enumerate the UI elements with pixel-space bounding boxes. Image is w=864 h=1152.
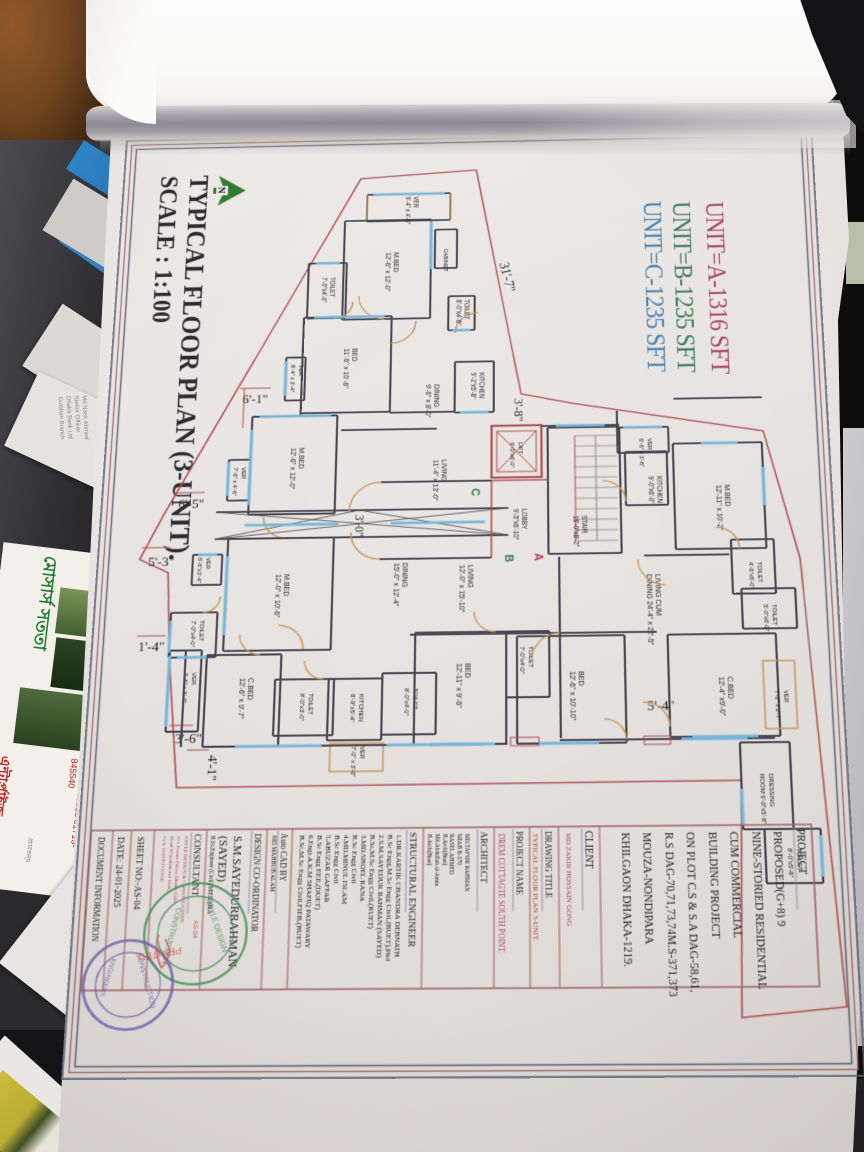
svg-text:BUILDING PROJECT: BUILDING PROJECT <box>704 832 720 939</box>
svg-text:4.MD.MINUL ISLAM: 4.MD.MINUL ISLAM <box>340 835 350 905</box>
svg-text:9'-4" x 4'-6": 9'-4" x 4'-6" <box>403 197 410 225</box>
svg-text:3'-6": 3'-6" <box>174 731 202 746</box>
svg-text:1.DR.KARTIK CHANDRA DEBNATH: 1.DR.KARTIK CHANDRA DEBNATH <box>392 834 403 958</box>
svg-text:9'-6" x 8'-0": 9'-6" x 8'-0" <box>423 384 431 418</box>
svg-text:AS-04: AS-04 <box>190 920 198 938</box>
svg-text:C.BED: C.BED <box>725 676 734 699</box>
svg-text:DINING: DINING <box>399 563 408 588</box>
svg-text:KITCHEN: KITCHEN <box>356 694 364 722</box>
svg-text:6'-1": 6'-1" <box>242 393 268 407</box>
svg-text:5'-4": 5'-4" <box>647 698 675 713</box>
svg-text:ENGINEERS: ENGINEERS <box>97 958 116 998</box>
svg-text:ROOM 9'-0"x5'-8": ROOM 9'-0"x5'-8" <box>757 774 766 824</box>
svg-text:7'-6" x 4'-6": 7'-6" x 4'-6" <box>230 467 238 496</box>
svg-text:9'-5"x6'-10": 9'-5"x6'-10" <box>511 509 518 540</box>
svg-text:TOILET: TOILET <box>196 620 204 642</box>
svg-text:LOBBY: LOBBY <box>519 509 526 530</box>
svg-text:5'-0"x6'-0": 5'-0"x6'-0" <box>761 604 769 631</box>
svg-text:NINE-STORIED RESIDENTIAL: NINE-STORIED RESIDENTIAL <box>748 831 767 989</box>
svg-text:(SAYED): (SAYED) <box>214 836 229 882</box>
svg-text:M.BED: M.BED <box>722 485 731 507</box>
svg-text:DRAWING TITLE: DRAWING TITLE <box>543 831 553 899</box>
svg-text:12'-4" x9'-0": 12'-4" x9'-0" <box>716 677 726 717</box>
svg-text:Md.Abdullah al-Amin: Md.Abdullah al-Amin <box>432 834 439 887</box>
svg-text:6'-0"x6'-0": 6'-0"x6'-0" <box>507 442 514 467</box>
svg-text:12'-6" x 10'-10": 12'-6" x 10'-10" <box>567 671 576 721</box>
svg-text:CUM COMMERCIAL: CUM COMMERCIAL <box>726 832 742 939</box>
svg-text:UNIT=B-1235 SFT: UNIT=B-1235 SFT <box>666 201 701 372</box>
svg-text:STRUCTURAL ENGINEER: STRUCTURAL ENGINEER <box>406 832 419 948</box>
svg-text:6'-6" x 3'-6": 6'-6" x 3'-6" <box>636 438 644 467</box>
svg-text:LIVING: LIVING <box>465 565 473 588</box>
svg-text:M.BED: M.BED <box>296 448 305 470</box>
svg-text:VER: VER <box>645 438 652 450</box>
svg-text:B.Arch(Buet): B.Arch(Buet) <box>425 834 432 866</box>
svg-text:6'-5": 6'-5" <box>178 497 205 511</box>
svg-text:MD.TAFSIR RAHMAN: MD.TAFSIR RAHMAN <box>463 834 469 892</box>
svg-text:C: C <box>468 488 481 496</box>
svg-text:B.Arch(Buet): B.Arch(Buet) <box>440 834 446 866</box>
svg-text:7'-0"x4'-0": 7'-0"x4'-0" <box>319 277 326 302</box>
svg-text:LIVING CUM: LIVING CUM <box>652 574 661 616</box>
svg-text:4'-6"x6'-0": 4'-6"x6'-0" <box>746 562 754 589</box>
svg-text:LIVING: LIVING <box>439 459 447 481</box>
svg-text:B.Sc Engg Civil: B.Sc Engg Civil <box>349 835 359 884</box>
svg-text:MIAB R-370: MIAB R-370 <box>455 834 461 866</box>
svg-text:CABINET: CABINET <box>441 249 448 273</box>
svg-text:TOILET: TOILET <box>769 604 777 626</box>
svg-text:PROJECT: PROJECT <box>794 829 809 875</box>
svg-text:7'-0" x 3'-0": 7'-0" x 3'-0" <box>348 746 356 777</box>
svg-text:LIFT: LIFT <box>516 442 523 454</box>
svg-text:M.BED: M.BED <box>281 574 290 597</box>
svg-text:DOCUMENT INFORMATION: DOCUMENT INFORMATION <box>89 837 104 942</box>
svg-text:B: B <box>502 554 515 562</box>
svg-text:VER: VER <box>203 558 211 570</box>
svg-text:KHILGAON DHAKA-1219.: KHILGAON DHAKA-1219. <box>618 832 633 967</box>
svg-text:7'-0"x4'-0": 7'-0"x4'-0" <box>517 646 524 673</box>
svg-text:3.MD.SHOEL RANA: 3.MD.SHOEL RANA <box>358 835 368 903</box>
svg-text:MOUZA-NONDIPARA: MOUZA-NONDIPARA <box>639 832 654 944</box>
svg-text:KITCHEN: KITCHEN <box>654 476 662 503</box>
svg-text:KITCHEN: KITCHEN <box>477 372 484 398</box>
svg-text:12'-0" x 15'-10": 12'-0" x 15'-10" <box>456 565 465 613</box>
svg-text:12'-11" x 10'-2": 12'-11" x 10'-2" <box>713 485 723 532</box>
svg-text:7'-0"x4'-0": 7'-0"x4'-0" <box>187 620 195 647</box>
svg-text:ON PLOT C.S & S.A DAG-58,61,: ON PLOT C.S & S.A DAG-58,61, <box>683 832 700 993</box>
svg-text:7'-2" x 2'-7": 7'-2" x 2'-7" <box>772 690 781 720</box>
svg-text:5'-3": 5'-3" <box>148 555 175 569</box>
svg-text:8'-0"x4'-0": 8'-0"x4'-0" <box>401 688 409 716</box>
svg-text:VER: VER <box>357 746 364 759</box>
svg-text:9'-2"x5'-8": 9'-2"x5'-8" <box>468 373 475 399</box>
svg-text:VER: VER <box>189 672 197 685</box>
svg-text:PROPOSED(G+8) 9: PROPOSED(G+8) 9 <box>770 831 788 927</box>
svg-text:VER: VER <box>411 196 418 207</box>
svg-text:8'-0"x4'-6": 8'-0"x4'-6" <box>454 300 461 326</box>
svg-text:12'-6" x 9'-7": 12'-6" x 9'-7" <box>235 678 245 720</box>
svg-text:TOILET: TOILET <box>305 693 313 715</box>
svg-text:UNIT=A-1316 SFT: UNIT=A-1316 SFT <box>699 201 735 374</box>
svg-text:12'-11" x 9'-6": 12'-11" x 9'-6" <box>453 663 462 708</box>
svg-text:11'-6" x 10'-6": 11'-6" x 10'-6" <box>341 348 350 389</box>
svg-text:8'-4" x 3'-4": 8'-4" x 3'-4" <box>287 365 295 393</box>
svg-text:DESIGN CO-ORDINATOR: DESIGN CO-ORDINATOR <box>249 833 263 932</box>
svg-text:TOILET: TOILET <box>755 562 763 583</box>
svg-text:SHEET NO:-AS-04: SHEET NO:-AS-04 <box>131 836 146 909</box>
svg-text:M.BED: M.BED <box>391 252 399 272</box>
svg-text:TOILET: TOILET <box>327 277 334 297</box>
svg-text:PROJECT NAME: PROJECT NAME <box>514 831 524 896</box>
svg-text:DRESSING: DRESSING <box>766 774 775 807</box>
svg-text:STAIR: STAIR <box>579 516 586 534</box>
svg-text:8'-0"x5'-8": 8'-0"x5'-8" <box>785 848 794 877</box>
svg-text:3'-8": 3'-8" <box>511 398 526 422</box>
svg-text:1'-4": 1'-4" <box>138 640 165 655</box>
svg-text:CLIENT: CLIENT <box>583 831 596 870</box>
svg-text:4'-1": 4'-1" <box>204 755 221 781</box>
svg-text:RASEL AHMED: RASEL AHMED <box>448 834 454 875</box>
svg-text:VER: VER <box>781 690 789 703</box>
svg-text:8'-0"x3'-0": 8'-0"x3'-0" <box>297 693 305 721</box>
svg-text:R.S DAG-70,71,73,74M.S-371,373: R.S DAG-70,71,73,74M.S-371,373 <box>661 832 678 997</box>
svg-text:DINING: DINING <box>431 384 439 407</box>
svg-text:12'-6" x 12'-0": 12'-6" x 12'-0" <box>382 252 391 292</box>
svg-text:STYLE DESIGN: STYLE DESIGN <box>203 898 228 954</box>
svg-text:C.BED: C.BED <box>245 678 254 701</box>
svg-text:BED: BED <box>349 348 357 362</box>
svg-text:3'-0": 3'-0" <box>351 515 365 537</box>
svg-text:12'-6" x 12'-0": 12'-6" x 12'-0" <box>287 448 297 491</box>
svg-text:N: N <box>215 187 227 195</box>
svg-text:9'-0"x6'-0": 9'-0"x6'-0" <box>646 476 654 503</box>
svg-text:5.ABUZAR GAFFAR: 5.ABUZAR GAFFAR <box>322 835 332 904</box>
svg-text:TYPICAL FLOOR PLAN 3-UNIT.: TYPICAL FLOOR PLAN 3-UNIT. <box>530 833 539 942</box>
svg-text:BED: BED <box>576 671 585 686</box>
svg-text:MD.ZAKIR HOSSAIN GONG: MD.ZAKIR HOSSAIN GONG <box>564 833 572 927</box>
svg-text:DATE: 24-01-2025: DATE: 24-01-2025 <box>111 837 126 908</box>
svg-text:ARCHITECT: ARCHITECT <box>478 831 489 883</box>
svg-text:16'-0"x8'-2": 16'-0"x8'-2" <box>571 516 578 547</box>
svg-text:DINING 24'-4" x 22'-5": DINING 24'-4" x 22'-5" <box>644 574 654 646</box>
svg-text:VER: VER <box>239 467 246 479</box>
svg-text:6'-6"x3'-4": 6'-6"x3'-4" <box>194 558 202 584</box>
svg-text:B.Sc Engg Civil: B.Sc Engg Civil <box>331 835 341 884</box>
svg-text:8'-9"x5'-4": 8'-9"x5'-4" <box>347 694 355 723</box>
svg-text:15'-0" x 12'-4": 15'-0" x 12'-4" <box>390 563 399 607</box>
svg-text:Auto CAD BY: Auto CAD BY <box>277 833 287 881</box>
svg-text:UNIT=C-1235 SFT: UNIT=C-1235 SFT <box>637 201 671 372</box>
svg-text:DREM COTTAGTE SOUTH POINT.: DREM COTTAGTE SOUTH POINT. <box>496 833 505 953</box>
svg-text:BED: BED <box>462 663 470 678</box>
svg-text:A: A <box>531 553 544 561</box>
svg-text:TOILET: TOILET <box>462 300 469 320</box>
svg-text:12'-0" x 10'-6": 12'-0" x 10'-6" <box>271 574 281 618</box>
